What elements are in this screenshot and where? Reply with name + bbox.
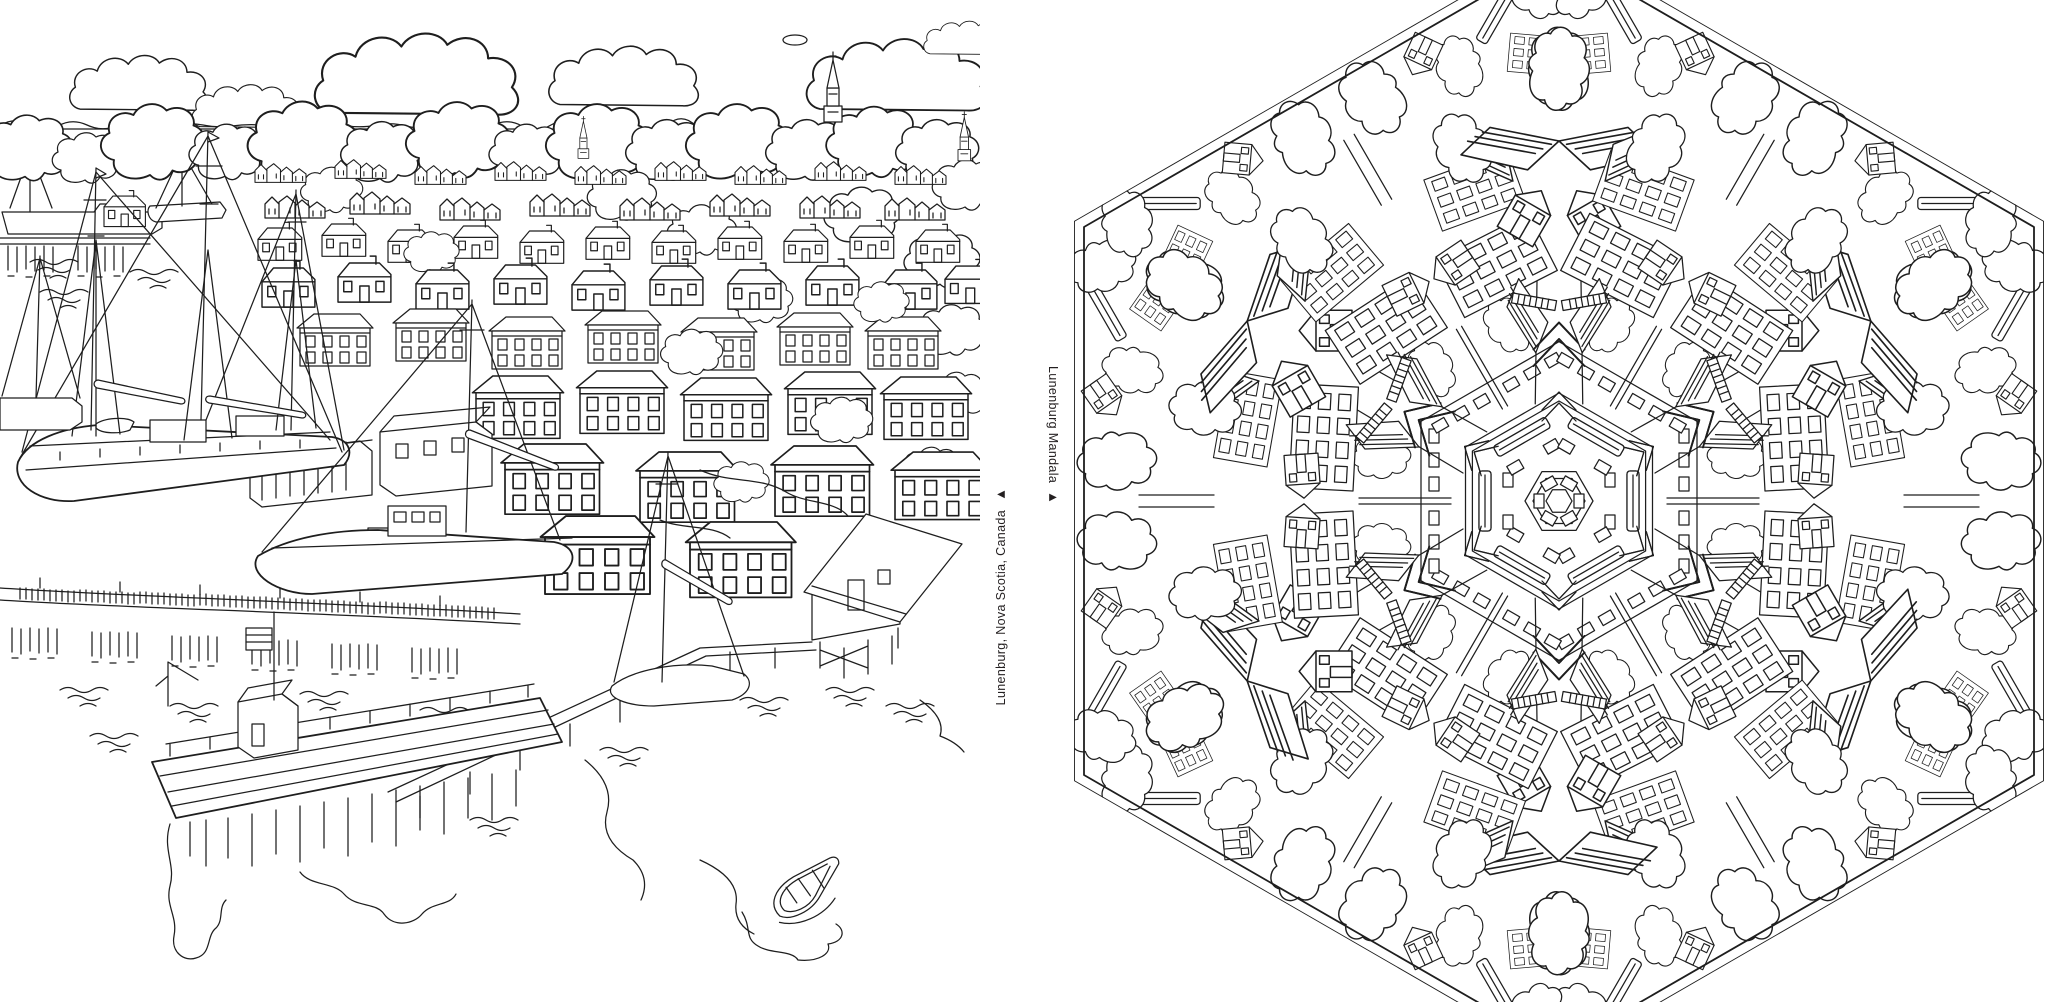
left-page-caption: ◀ Lunenburg, Nova Scotia, Canada — [990, 490, 1012, 705]
tree-band — [0, 102, 980, 418]
left-page-caption-text: Lunenburg, Nova Scotia, Canada — [994, 510, 1008, 705]
left-page-arrow-icon: ◀ — [997, 490, 1005, 500]
left-page-harbour-illustration — [0, 0, 980, 1002]
right-page-caption: Lunenburg Mandala ▶ — [1042, 366, 1064, 503]
rowboat — [742, 856, 852, 960]
mandala-kaleidoscope — [1070, 0, 2048, 1002]
coloring-book-spread: ◀ Lunenburg, Nova Scotia, Canada Lunenbu… — [0, 0, 2048, 1002]
stilt-boathouse — [804, 514, 964, 752]
right-page-caption-text: Lunenburg Mandala — [1046, 366, 1060, 483]
right-page-arrow-icon: ▶ — [1049, 493, 1057, 503]
right-page-mandala-illustration — [1070, 0, 2048, 1002]
mandala-center-rosette — [1466, 393, 1653, 609]
